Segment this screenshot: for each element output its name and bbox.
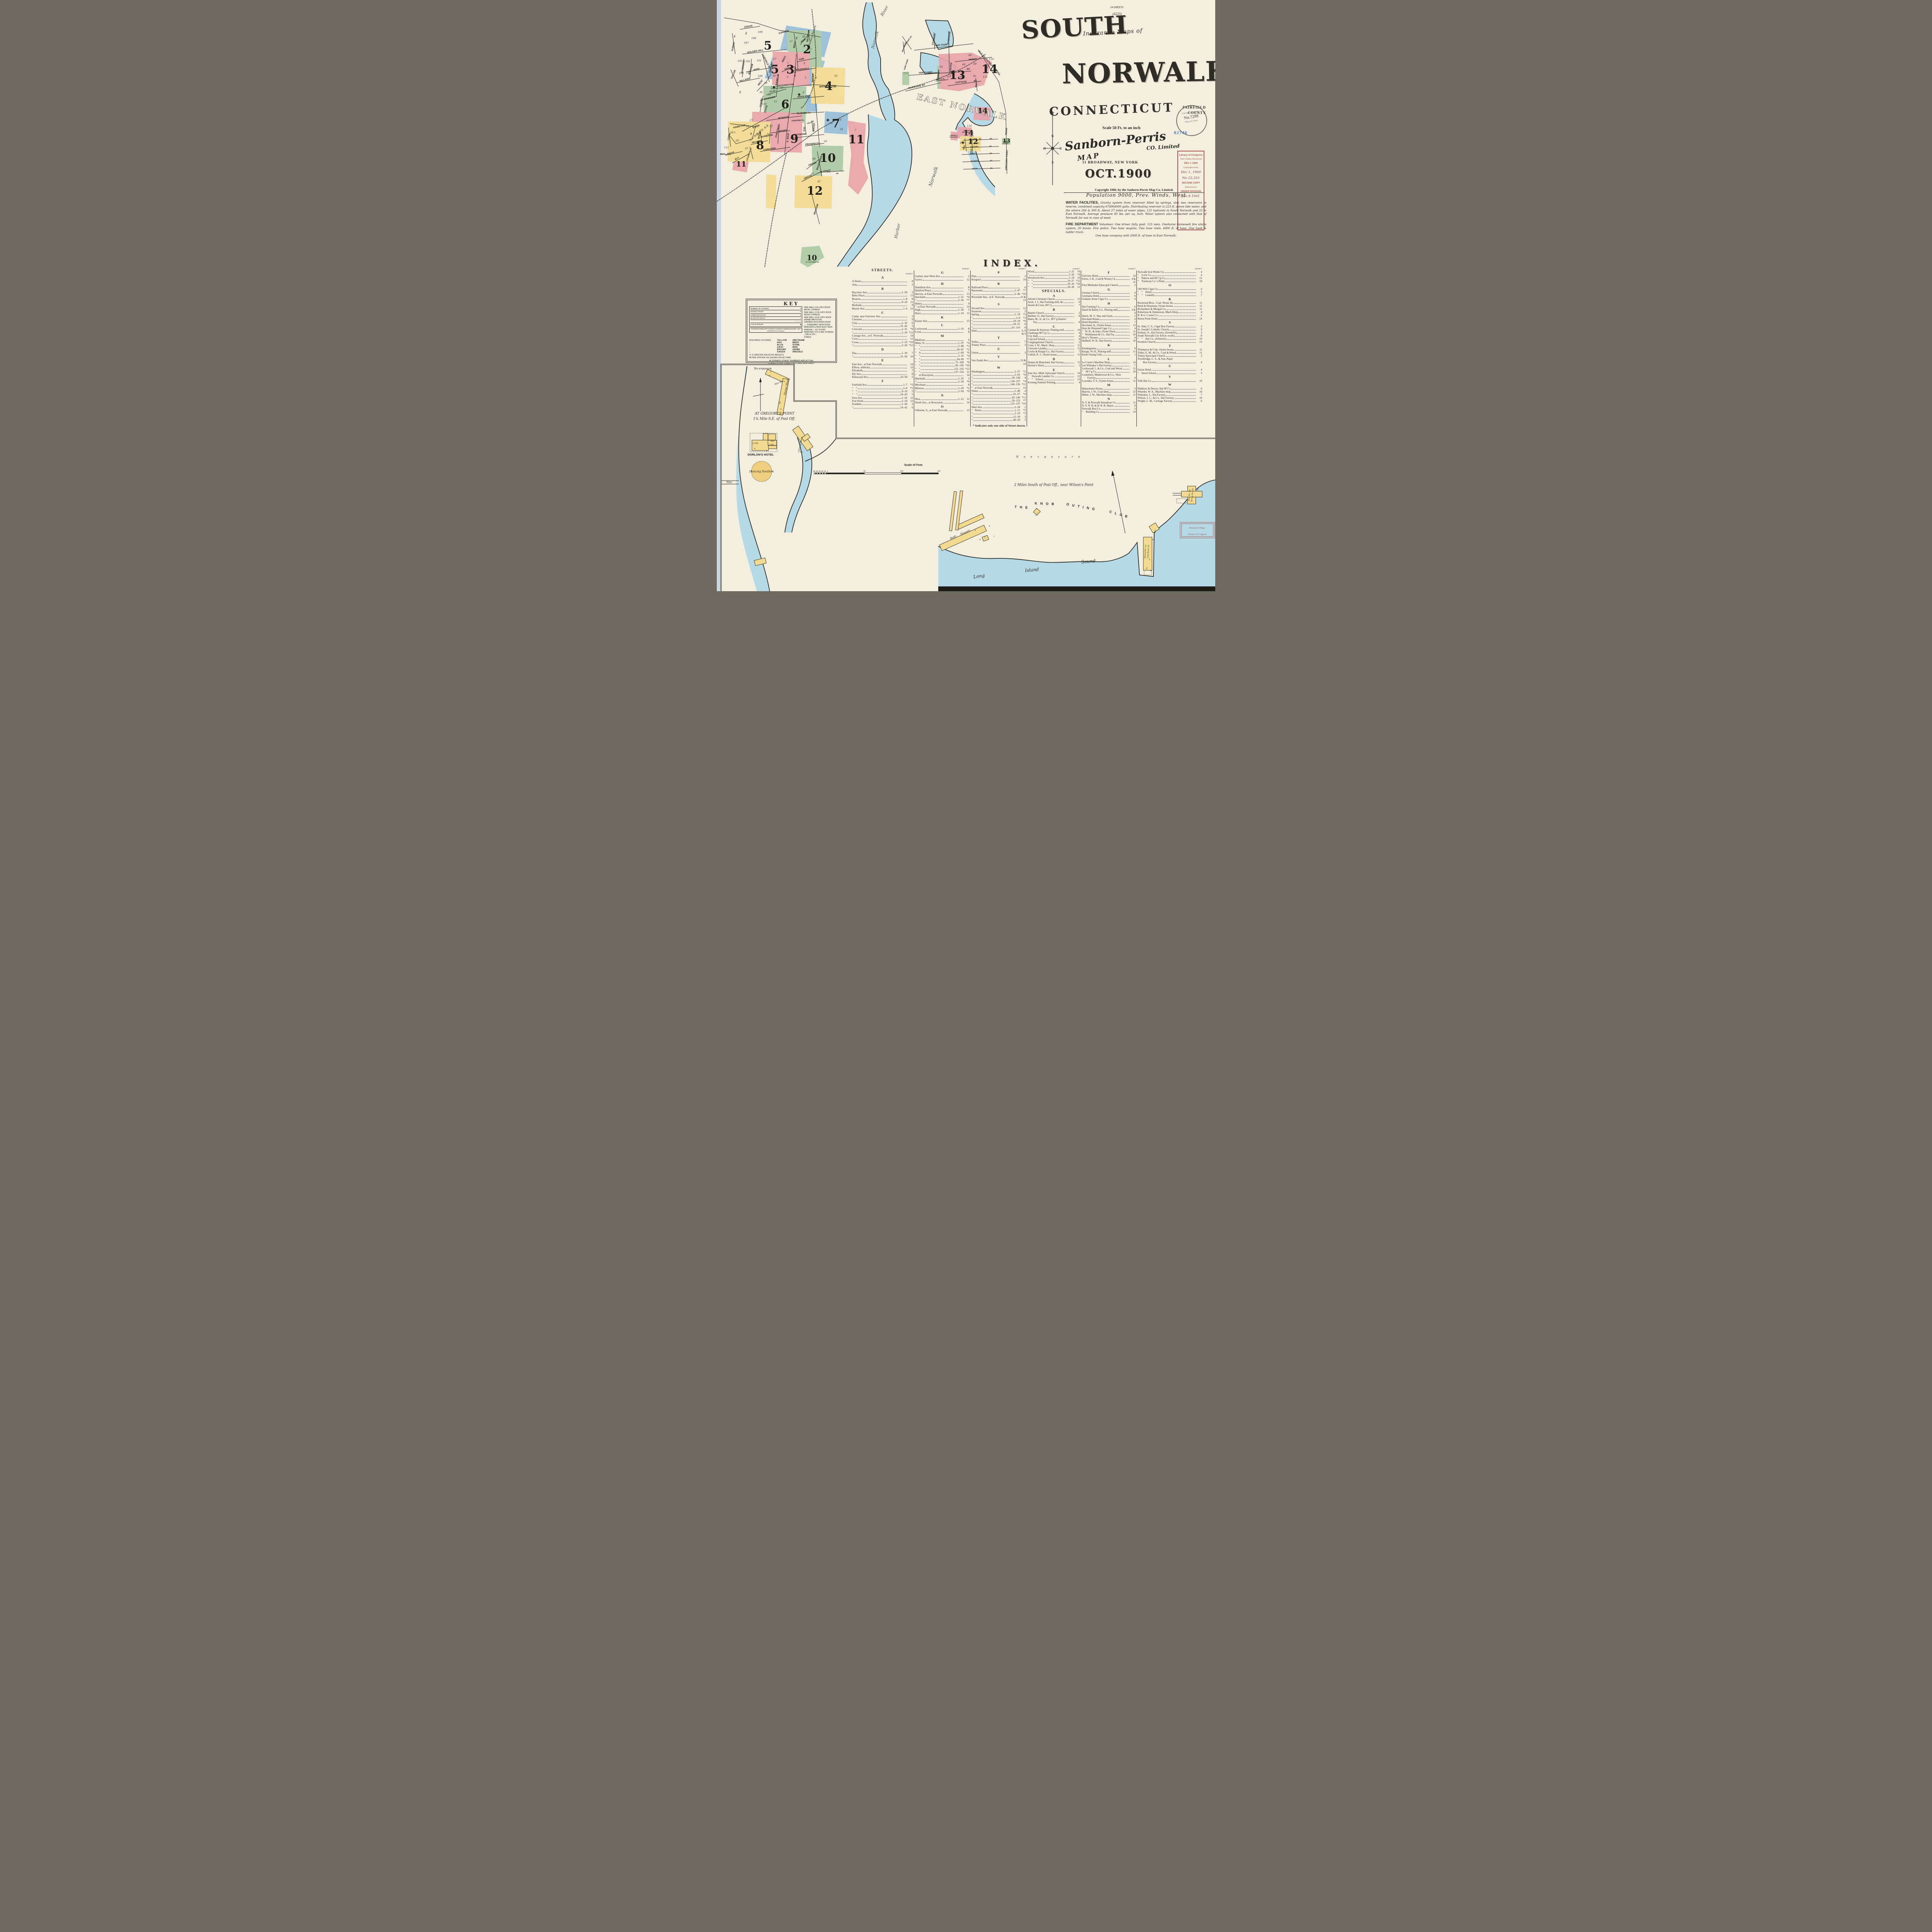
map-label: AV. xyxy=(990,167,993,170)
index-letter-header: V xyxy=(971,355,1026,359)
index-entry: Tolles, E. M., & Co., Coal & Wood,11 xyxy=(1138,351,1202,354)
index-entry: “2–26*9 xyxy=(1028,274,1080,277)
map-label: River xyxy=(879,5,890,17)
map-label: 2 Miles South of Post Off., near Wilson'… xyxy=(1014,483,1094,487)
map-label: HIGH xyxy=(753,68,760,71)
map-label: 100 xyxy=(900,470,903,472)
index-entry: “20–516 xyxy=(971,323,1026,326)
map-label: 50 xyxy=(813,470,816,473)
map-label: 115 xyxy=(983,75,988,78)
map-label: 26 xyxy=(735,139,739,142)
index-entry: Knapp, W. H., Planing-mill,11 xyxy=(1082,350,1136,354)
index-entry: Grove,12 xyxy=(915,278,969,281)
index-entry: “ Tramway Co.’s Plant,10 xyxy=(1138,280,1202,283)
index-entry: Second Ave.,12 xyxy=(971,307,1026,310)
svg-text:E: E xyxy=(1060,147,1061,150)
map-label: Dancing Pavillion xyxy=(749,469,774,473)
map-label: 10 xyxy=(807,254,817,262)
map-label: Pier xyxy=(726,480,732,484)
key-symbol-row: NUMBER OF STORIES3 xyxy=(750,307,801,310)
map-label: 11 xyxy=(848,133,864,146)
gregorys-point-inset xyxy=(721,369,816,566)
index-sheet-label: SHEET xyxy=(971,268,1026,270)
map-label: 1 F.R. xyxy=(769,444,774,446)
map-label: 50 xyxy=(973,75,976,78)
map-label: 1 xyxy=(993,536,995,538)
map-label: ✕ xyxy=(1035,514,1036,516)
map-label: AV. xyxy=(836,172,839,175)
map-label: ✕ xyxy=(1150,570,1151,572)
index-entry: “61–1108 xyxy=(971,326,1026,329)
map-label: 108 xyxy=(751,37,756,40)
index-entry: Kaiser Ave.,13 xyxy=(915,320,969,323)
map-label: 15 xyxy=(774,100,777,103)
map-label: 17 xyxy=(817,143,821,146)
key-symbol-row: COMPOSITION R'F● xyxy=(750,314,801,317)
index-entry: Riverside Ave., at E. Norwalk,12 & 13 xyxy=(971,296,1026,302)
map-label: ROAD xyxy=(1005,128,1008,135)
north-arrow xyxy=(759,378,762,382)
map-label: N o e x p o s u r e xyxy=(1016,455,1082,458)
map-label: 48 xyxy=(968,54,971,57)
map-label: AV. xyxy=(967,68,971,71)
key-symbol-row: — — — xyxy=(750,320,801,323)
index-entry: Bates, M., Jr., & Co., M’f’g Hatters’ xyxy=(1028,318,1080,321)
map-label: AV. xyxy=(973,80,977,83)
map-label: 42 xyxy=(817,180,820,183)
index-letter-header: T xyxy=(971,336,1026,340)
map-label: 106 xyxy=(758,75,763,78)
key-colors: BUILDINGS COLOREDYELLOWARE FRAME„REDBRIC… xyxy=(749,339,833,353)
index-entry: Fur,8 xyxy=(1028,321,1080,324)
index-entry: Asch, J. J., Hat Forming-mill, &c.,6 xyxy=(1028,301,1080,304)
map-label: ✚ xyxy=(951,71,954,75)
map-label: 2 xyxy=(779,401,781,405)
index-entry: Cutbill, R. J., Oyster-house,11 xyxy=(1028,354,1080,357)
map-label: 114 xyxy=(967,124,972,128)
map-label: 51 xyxy=(947,75,950,78)
stamp-line: Copyright entry xyxy=(1179,166,1203,170)
index-entry: Chestnut,9 xyxy=(852,318,913,321)
sanborn-map-sheet: CEDARSUMMITAV.AV.GOLDEN HILLFAIRFIELD AV… xyxy=(717,0,1215,591)
map-label: PL. xyxy=(739,90,742,93)
key-legend: FIRE WALL 6 IN. A'B'V ROOF.METAL CORNICE… xyxy=(804,306,833,338)
index-entry: Germania Hotel,6 xyxy=(1082,295,1136,298)
index-entry: Seymour,2 xyxy=(971,310,1026,313)
index-entry: Challenge M’f’g Co.,4 xyxy=(1028,332,1080,335)
index-entry: Raymond,1–47*7 xyxy=(971,289,1026,292)
map-label: AV. xyxy=(733,35,736,38)
index-entry: “2–10*12 xyxy=(852,331,913,334)
map-label: ✕ 8 ○ xyxy=(798,451,803,453)
index-entry: Hamilton Ave.,8 xyxy=(915,286,969,289)
key-symbol-row: SLATE OR TIN R'F○ xyxy=(750,317,801,320)
index-entry: Hoyt’s Theatre,4 xyxy=(1082,337,1136,340)
map-label: 20 xyxy=(821,470,823,473)
key-symbol-table: NUMBER OF STORIES3SHINGLE ROOF✕COMPOSITI… xyxy=(749,306,802,327)
index-letter-header: F xyxy=(1082,271,1136,275)
map-label: 25 xyxy=(745,147,748,150)
map-label: ✚ xyxy=(773,85,776,89)
map-label: Scale of Feet. xyxy=(904,463,923,467)
title-norwalk: NORWALK xyxy=(1061,55,1215,90)
index-entry: “ “2–32*4 xyxy=(915,354,969,357)
map-label: Library of Congress xyxy=(1188,533,1207,536)
index-entry: Pine,2 xyxy=(971,275,1026,278)
map-label: 37 xyxy=(773,58,776,61)
map-label: TAYLOR xyxy=(731,70,736,80)
index-entry: South Norwalk City Electr.-works,8 xyxy=(1138,334,1202,337)
index-entry: Kindergarten,9 xyxy=(1082,347,1136,350)
index-entry: Trinity Episcopal Church,3 xyxy=(1138,354,1202,357)
map-label: 8 xyxy=(756,139,764,152)
map-label: HOYT xyxy=(720,153,725,156)
index-entry: Advent Christian Church,13 xyxy=(1028,298,1080,301)
key-legend-line: WINDOWS & IRON SHUTTERS. xyxy=(804,326,833,328)
map-label: 1 xyxy=(984,536,986,539)
map-label: ✕ xyxy=(783,381,785,383)
map-label: 10 xyxy=(820,151,836,165)
map-label: 33 xyxy=(769,125,772,128)
map-label: Sal. xyxy=(770,440,775,442)
map-label: 102 xyxy=(745,60,750,63)
map-label: 1 xyxy=(770,371,772,373)
map-label: ✕ xyxy=(754,447,755,450)
fire-department: FIRE DEPARTMENT Volunteer. One driver fu… xyxy=(1066,222,1206,238)
index-entry: Main, N.,1–37*4 xyxy=(915,342,969,345)
index-entry: “ Wolthausen & Co., Hat Fac.,10 xyxy=(1082,333,1136,337)
index-entry: Fairview Hotel,14 xyxy=(1082,275,1136,278)
index-entry: Prospect,10 xyxy=(971,278,1026,281)
map-label: T H E xyxy=(1014,505,1029,510)
map-label: Harbor xyxy=(893,223,901,239)
index-letter-header: U xyxy=(971,347,1026,351)
index-letter-header: M xyxy=(915,334,969,338)
index-entry: Wood,1–31*8 xyxy=(1028,270,1080,274)
index-entry: Hatch & Bailey Co., Planing-mill,2 & 4 xyxy=(1082,309,1136,315)
map-label: ✕ xyxy=(989,525,990,527)
map-label: 9 xyxy=(801,107,802,110)
index-entry: Hoyt,1–1011 xyxy=(915,312,969,315)
map-label: SUMMIT xyxy=(731,41,736,51)
index-entry: “ “19–27*12 xyxy=(1028,280,1080,283)
water-facilities: WATER FACILITIES, Gravity system from re… xyxy=(1066,201,1206,219)
map-label: 34 xyxy=(767,133,770,136)
index-entry: Betts Place,13 xyxy=(852,294,913,297)
index-letter-header: T xyxy=(1138,344,1202,348)
index-letter-header: D xyxy=(852,348,913,352)
index-letter-header: S xyxy=(1138,321,1202,325)
key-color-row: „GREENSPECIALS xyxy=(749,351,833,353)
map-label: 18 xyxy=(840,128,843,131)
map-label: 1 xyxy=(787,61,789,64)
map-label: GREGORY POINT xyxy=(1005,150,1009,170)
index-entry: Cedar, near Fairview Ave.5 xyxy=(852,315,913,318)
index-entry: Concord School,9 xyxy=(1028,338,1080,341)
key-note: COUNTING FROM LEFT TO RIGHT LOOKING TOWA… xyxy=(749,328,802,333)
map-label: 10 xyxy=(838,118,841,121)
index-entry: Hanford Place,7 xyxy=(915,289,969,292)
map-label: DAY xyxy=(803,126,806,131)
index-entry: Graham–Ernst Cigar Co.4 xyxy=(1082,298,1136,301)
map-label: ✚ xyxy=(798,93,801,97)
map-label: 30 xyxy=(818,470,821,473)
index-entry: Cove,12 xyxy=(852,337,913,340)
map-scale-note: Scale 50 Ft. to an inch xyxy=(1102,126,1141,130)
key-symbol-row: STEAM BOILER▮ xyxy=(750,323,801,326)
map-label: 27 xyxy=(749,119,753,122)
map-label: ✚ xyxy=(961,141,964,145)
pier-building xyxy=(949,492,957,531)
index-entry: Cross,1–19*10 xyxy=(852,341,913,344)
index-section-title: SPECIALS. xyxy=(1028,289,1080,294)
map-label: 26½ xyxy=(730,131,736,134)
index-entry: Norwalk Iron Works Co.,4 xyxy=(1138,270,1202,274)
map-label: 50 xyxy=(864,470,866,472)
scale-bar xyxy=(814,473,939,474)
map-label: 45 xyxy=(970,135,974,138)
map-label: 3 xyxy=(810,48,811,51)
map-label: DORLON'S HOTEL xyxy=(748,453,774,456)
index-entry: “ “ Hotel,5 xyxy=(1138,291,1202,294)
index-title: INDEX. xyxy=(983,258,1037,269)
index-entry: “ “20–26*10 xyxy=(1028,283,1080,286)
map-label: 103 xyxy=(738,60,743,63)
map-label: ✕ xyxy=(979,539,981,541)
map-label: 36 xyxy=(772,74,776,77)
index-entry: St. John, C. S., Cigar Box Factory,2 xyxy=(1138,325,1202,328)
index-entry: “ “2–98*3 xyxy=(915,345,969,348)
index-letter-header: C xyxy=(852,311,913,315)
index-sheet-label: SHEET xyxy=(852,273,913,276)
index-entry: Burbank,9 xyxy=(852,304,913,307)
index-entry: “ “ Laundry,7 xyxy=(1138,294,1202,297)
index-entry: State,6, 8 & 9 xyxy=(971,329,1026,336)
index-entry: Lockwood,1–168 xyxy=(915,327,969,330)
index-entry: High,1–365 xyxy=(915,308,969,311)
map-label: 104 xyxy=(739,72,744,75)
map-label: ✕ xyxy=(975,529,976,532)
svg-text:W: W xyxy=(1043,147,1046,150)
index-letter-header: L xyxy=(915,323,969,327)
index-sheet-label: SHEET xyxy=(1082,268,1136,270)
map-label: 101 xyxy=(757,59,762,62)
map-label: ✕ xyxy=(1152,539,1154,541)
map-label: 4 xyxy=(825,80,833,93)
index-letter-header: C xyxy=(1028,325,1080,329)
index-entry: Hubbell, W. B., Hat Factory,10 xyxy=(1082,340,1136,343)
index-entry: Craw, J. W., Mach. Shop,11 xyxy=(1028,344,1080,347)
map-label: 35 xyxy=(756,133,759,136)
map-label: 1 xyxy=(1155,529,1156,532)
map-label: FAIRFIELD AV. xyxy=(761,54,771,70)
index-entry: Swedish Church,13 xyxy=(1138,340,1202,344)
index-entry: Madison,6 xyxy=(915,338,969,342)
map-label: 49 xyxy=(973,63,976,66)
map-label: Norwalk xyxy=(927,166,939,188)
map-label: Division of Maps xyxy=(1189,527,1206,529)
index-letter-header: G xyxy=(915,271,969,275)
index-letter-header: B xyxy=(852,287,913,291)
map-label: 14 xyxy=(978,107,988,115)
map-date: OCT.1900 xyxy=(1085,167,1152,180)
north-arrow xyxy=(1111,471,1114,476)
index-letter-header: P xyxy=(971,271,1026,275)
map-label: 109 xyxy=(758,31,763,34)
map-label: 10 xyxy=(824,470,826,473)
map-label: 12 xyxy=(784,100,787,104)
stamp-line: DEC 1 1900 xyxy=(1179,161,1203,165)
index-entry: City Hall,4 xyxy=(1028,335,1080,338)
index-entry: Day,1–307 xyxy=(852,352,913,355)
index-entry: “31–425 xyxy=(852,325,913,328)
map-label: 2 xyxy=(1196,487,1199,491)
map-label: 19 xyxy=(824,140,827,143)
inset-maps: No exposureHorse ShedHen Ho.21✕✕✕AT GREG… xyxy=(717,360,1215,591)
index-letter-header: H xyxy=(915,282,969,286)
map-label: AV. xyxy=(990,138,993,140)
map-label: 3 F.R. xyxy=(752,442,759,445)
index-entry: Concord,1–31*9 xyxy=(852,328,913,331)
sheets-note: 14-SHEETS xyxy=(1110,6,1123,9)
map-label: GOLDEN HILL xyxy=(747,49,764,54)
map-label: 9 xyxy=(790,133,798,146)
map-label: AT GREGORY'S POINT xyxy=(754,412,795,416)
index-entry: Austin & Craw, M’f’y,7 xyxy=(1028,304,1080,307)
index-entry: Ann,2 xyxy=(852,283,913,286)
key-legend-line: OPENING WITH IRON DOOR: xyxy=(804,321,833,323)
map-label: 105 xyxy=(746,71,751,74)
stamp-line: Two Copies Received xyxy=(1179,157,1203,161)
map-label: ✕ xyxy=(780,408,782,410)
index-entry: “ at East Norwalk,14 xyxy=(915,305,969,308)
index-entry: Carman & Seymour, Planing-mill,14 xyxy=(1028,329,1080,332)
key-box: KEY NUMBER OF STORIES3SHINGLE ROOF✕COMPO… xyxy=(747,300,836,362)
map-label: 52 xyxy=(940,65,943,68)
map-label: 13 xyxy=(949,68,966,82)
index-entry: “2–8*3 xyxy=(971,316,1026,320)
index-entry: Hat Forming Co.,6 xyxy=(1082,306,1136,309)
map-label: ✚ xyxy=(827,118,830,122)
map-label: 0 xyxy=(827,470,828,473)
index-entry: Cottage Ave., at E. Norwalk,14 xyxy=(852,334,913,337)
map-label: 50 xyxy=(959,75,962,78)
index-entry: Bouton,1–88 xyxy=(852,298,913,301)
index-entry: “ Lock Co.,4 xyxy=(1138,274,1202,277)
map-label: 41 xyxy=(811,172,814,175)
index-entry: “ “39–97*2 xyxy=(915,348,969,351)
index-entry: Crofut & Knapp Co., Hat Factory,7 xyxy=(1028,350,1080,354)
index-entry: Crescent Laundry,11 xyxy=(1028,347,1080,350)
index-entry: Hatch, M. T., Hay and Grain,2 xyxy=(1082,315,1136,318)
map-label: AV. xyxy=(745,32,748,35)
index-entry: R. & G. Corset Co.,2 xyxy=(1138,314,1202,317)
index-entry: “2–20*12 xyxy=(852,344,913,347)
map-label: 1¾ Mile S.E. of Post Off. xyxy=(753,417,796,421)
map-label: 49 xyxy=(962,63,965,66)
map-label: 46 xyxy=(969,141,972,145)
stamp-line: Library of Congress xyxy=(1179,153,1203,157)
index-entry: Lowe,8 xyxy=(915,330,969,333)
map-label: C L U B xyxy=(1109,510,1129,519)
index-entry: “31–5010 xyxy=(852,355,913,358)
map-label: FORT POINT xyxy=(903,59,909,70)
statistics-block: Population 9000, Prev. Winds, West WATER… xyxy=(1066,192,1206,237)
index-entry: Bayview Ave.,1–505 xyxy=(852,291,913,294)
index-sheet-label: SHEET xyxy=(915,268,969,270)
map-label: 12 xyxy=(807,184,823,198)
index-entry: A Street,8 xyxy=(852,280,913,283)
map-label: 28 xyxy=(745,125,749,128)
index-entry: Thompson & Cole, Oyster-house,11 xyxy=(1138,348,1202,351)
index-entry: “ “ Hat Co., (formerly)10 xyxy=(1138,337,1202,340)
index-letter-header: S xyxy=(971,303,1026,306)
map-label: O U T I N G xyxy=(1066,502,1096,511)
key-legend-line: STABLE xyxy=(804,336,833,338)
svg-text:S: S xyxy=(1051,161,1053,164)
index-letter-header: B xyxy=(1028,308,1080,312)
map-label: 0 xyxy=(1149,559,1150,561)
map-label: 1 xyxy=(751,470,753,473)
stamp-line: Delivered to xyxy=(1179,185,1203,189)
map-label: 32 xyxy=(755,125,758,128)
map-label: 40 xyxy=(812,157,815,160)
fleur-de-lis-icon: ⚜ xyxy=(1050,110,1055,116)
map-label: 112 xyxy=(726,153,731,156)
title-state: CONNECTICUT xyxy=(1049,100,1174,119)
index-entry: “ “28–4912 xyxy=(1028,286,1080,289)
main-city-map: CEDARSUMMITAV.AV.GOLDEN HILLFAIRFIELD AV… xyxy=(717,0,1018,267)
index-entry: Railroad Place,6 xyxy=(971,286,1026,289)
index-letter-header: K xyxy=(1082,344,1136,347)
map-label: 3 xyxy=(786,63,794,77)
map-label: 19 xyxy=(827,170,830,173)
index-entry: Roton Point Hotel,14 xyxy=(1138,317,1202,320)
index-entry: Tolles,7 xyxy=(971,340,1026,344)
index-entry: Haviland,1–31*4 xyxy=(915,296,969,299)
index-entry: Baptist Church,2 xyxy=(1028,312,1080,315)
index-entry: Woodward Ave.,1–1810 xyxy=(1028,277,1080,280)
index-entry: “ S.,1–69*6 xyxy=(915,351,969,354)
index-entry: Knob Outing Club,1 xyxy=(1082,354,1136,357)
index-entry: Union,3 xyxy=(971,351,1026,354)
map-label: AV. xyxy=(989,145,992,148)
map-label: AV. xyxy=(990,152,993,155)
index-letter-header: K xyxy=(915,316,969,320)
publisher-address: 11 BROADWAY, NEW YORK xyxy=(1082,161,1138,165)
stamp-line: SECOND COPY xyxy=(1179,181,1203,185)
map-label: 29 xyxy=(764,82,767,85)
map-label: WATER xyxy=(813,123,816,132)
index-letter-header: G xyxy=(1082,288,1136,292)
index-entry: Solman, A., Hat Factory, (formerly)3 xyxy=(1138,331,1202,334)
map-label: 16 xyxy=(829,122,832,125)
map-label: 111 xyxy=(724,146,729,149)
map-label: ✕ xyxy=(771,470,772,473)
map-label: 5 xyxy=(804,76,806,79)
index-entry: Old Well Cigar Co.,4 xyxy=(1138,287,1202,291)
map-label: K N O B xyxy=(1035,501,1055,506)
stamp-line: No 22,355 xyxy=(1179,175,1203,181)
map-label: 107 xyxy=(744,41,749,44)
map-label: 6 xyxy=(815,77,817,80)
index-letter-header: R xyxy=(971,282,1026,286)
map-label: 40 xyxy=(816,470,818,473)
index-entry: Robertson & Jimmerson, Mach.Shop4 xyxy=(1138,311,1202,314)
map-label: 14 xyxy=(981,63,998,76)
map-label: 38 xyxy=(802,35,805,38)
population-line: Population 9000, Prev. Winds, West xyxy=(1066,192,1206,198)
